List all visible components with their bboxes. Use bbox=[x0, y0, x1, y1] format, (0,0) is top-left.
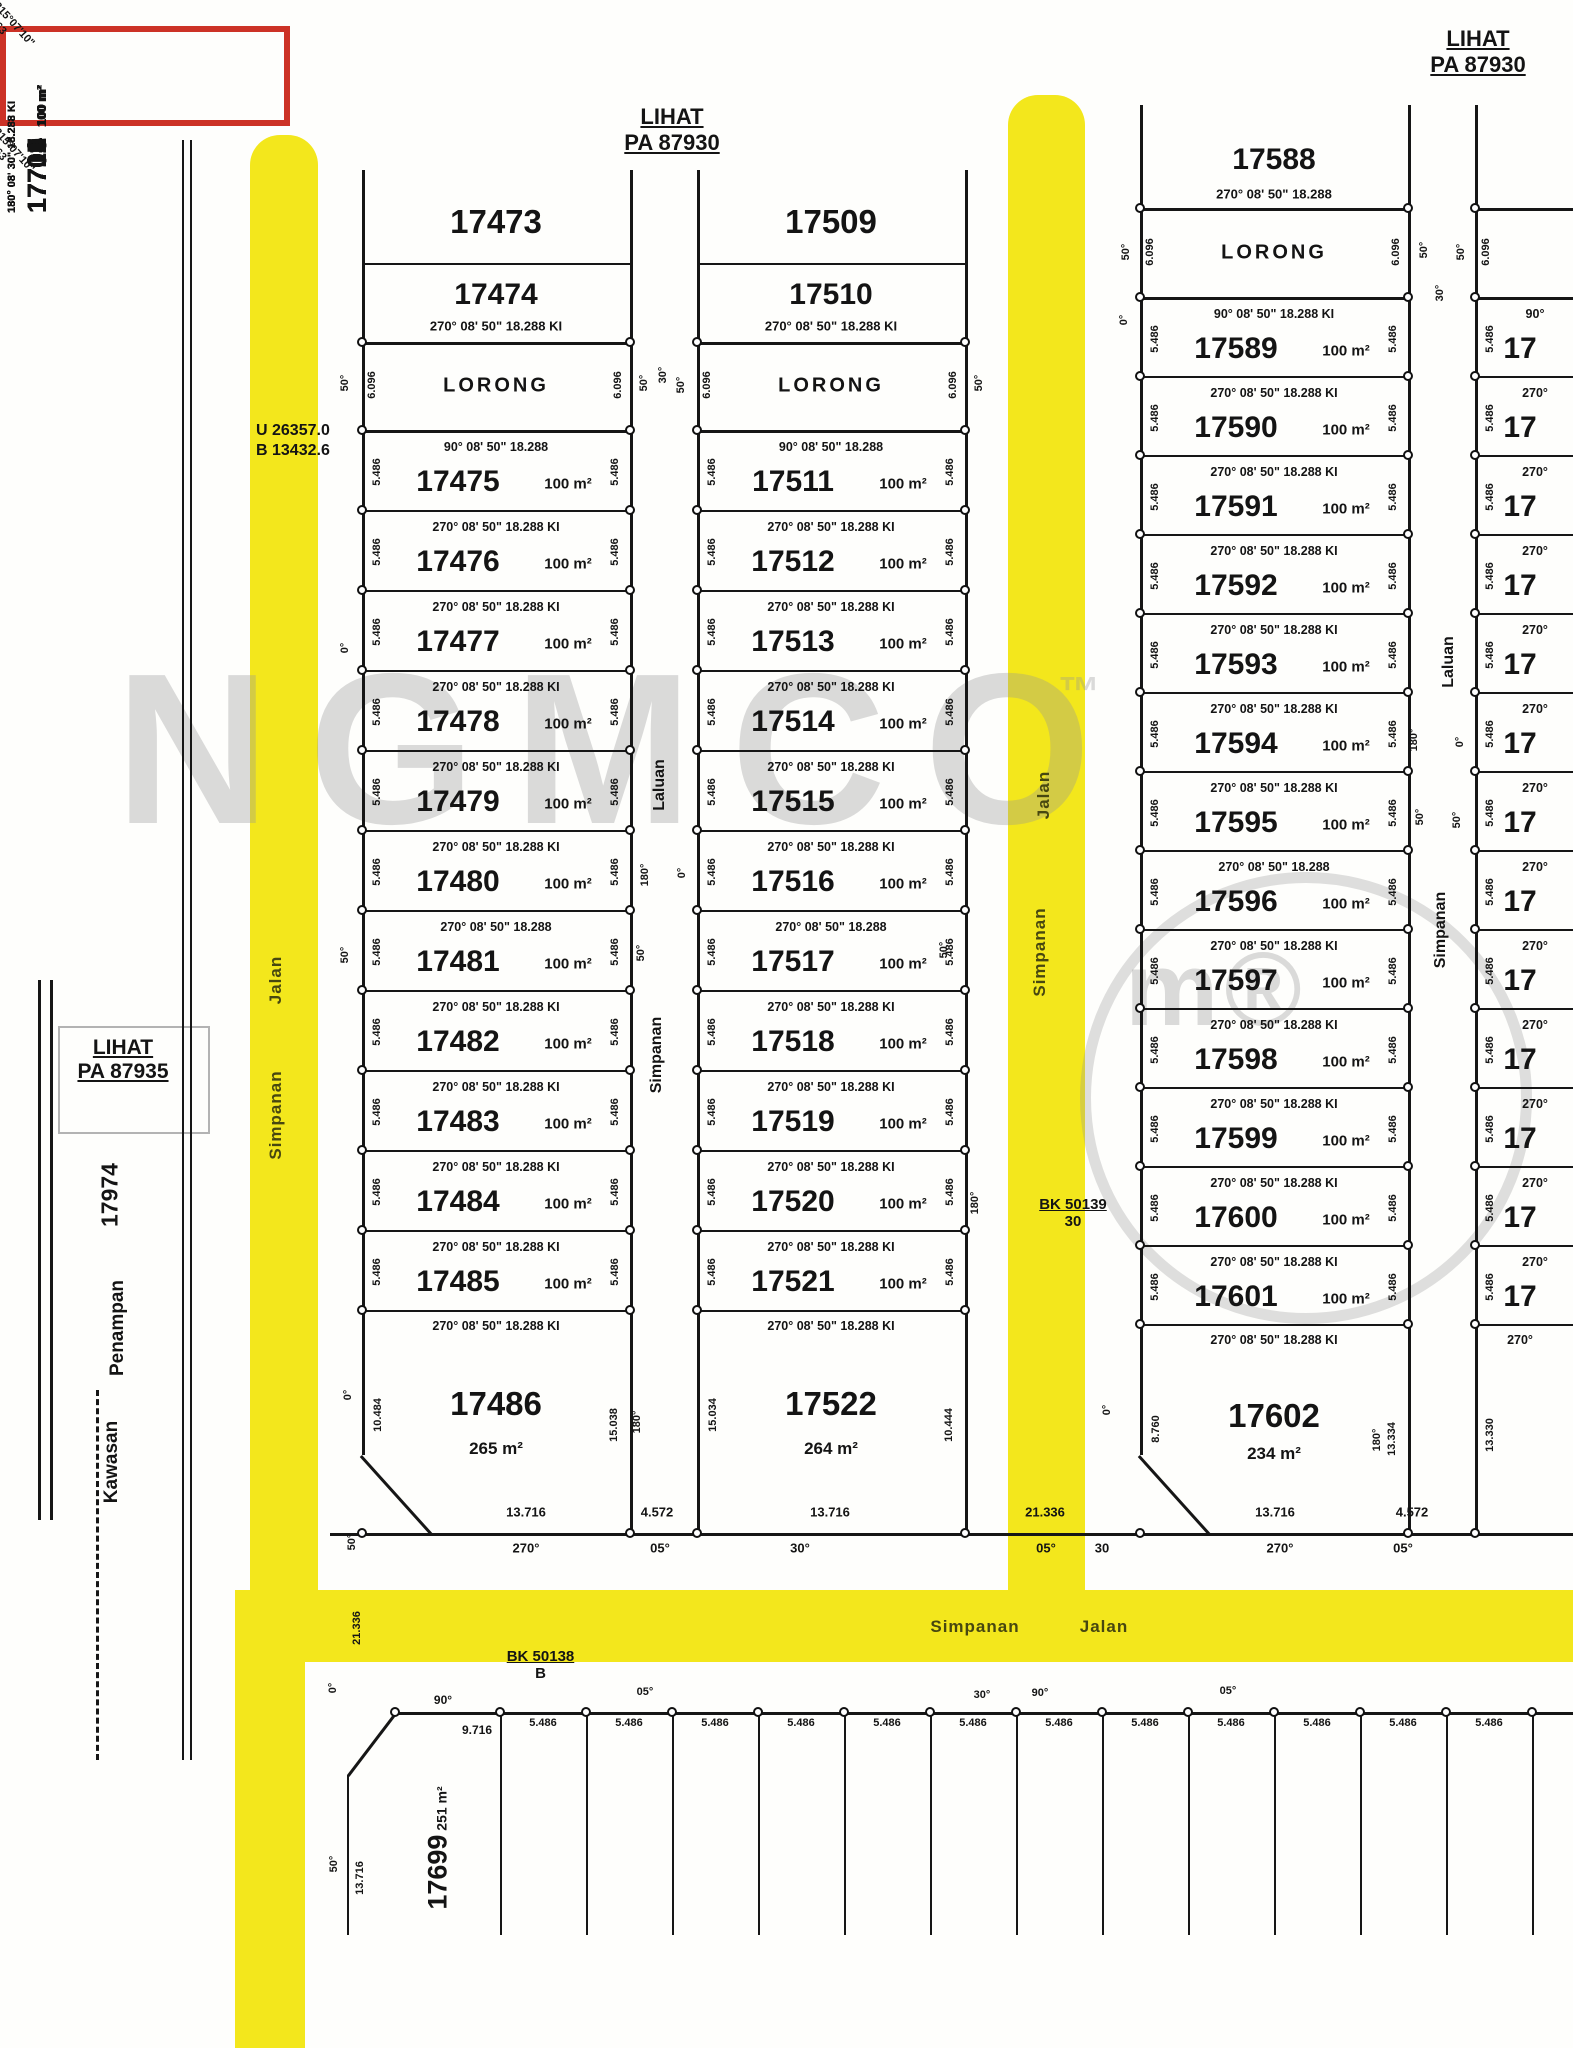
stray-label: 0° bbox=[676, 868, 688, 879]
side-dimension: 5.486 bbox=[609, 1098, 621, 1126]
road-middle-name-jalan: Jalan bbox=[1034, 771, 1054, 819]
lot-area: 100 m² bbox=[879, 1276, 927, 1293]
boundary-line bbox=[1140, 376, 1408, 378]
stray-label: 0° bbox=[342, 1390, 354, 1401]
edge-dimension: 21.336 bbox=[1025, 1505, 1065, 1520]
lorong-label: LORONG bbox=[778, 375, 884, 398]
bearing-label: 270° bbox=[1522, 544, 1548, 558]
boundary-line bbox=[1475, 613, 1573, 615]
walkway1-name-laluan: Laluan bbox=[651, 759, 669, 811]
watermark-text: NGMCO bbox=[115, 625, 1129, 873]
bearing-label: 270° 08' 50" 18.288 KI bbox=[1210, 781, 1337, 795]
side-dimension: 5.486 bbox=[1387, 799, 1399, 827]
boundary-line bbox=[347, 1775, 349, 1935]
bk-ref-50138: BK 50138 B bbox=[488, 1648, 593, 1682]
side-dimension: 5.486 bbox=[1387, 1115, 1399, 1143]
boundary-line bbox=[697, 1070, 965, 1072]
side-dimension: 5.486 bbox=[1387, 957, 1399, 985]
survey-mark-icon bbox=[692, 505, 702, 515]
lot-number: 17 bbox=[1503, 1201, 1536, 1235]
ref-note-left-line1: LIHAT bbox=[52, 1036, 194, 1060]
bottom-lot-17702: 180° 08' 30" 18.288 KI17702100 m² bbox=[0, 598, 86, 821]
survey-mark-icon bbox=[625, 985, 635, 995]
boundary-line bbox=[395, 1712, 1573, 1715]
lot-number: 17 bbox=[1503, 569, 1536, 603]
survey-mark-icon bbox=[1135, 845, 1145, 855]
lot-area: 100 m² bbox=[879, 876, 927, 893]
lot-number: 17594 bbox=[1194, 727, 1277, 761]
survey-mark-icon bbox=[1135, 924, 1145, 934]
edge-bearing: 05° bbox=[650, 1541, 670, 1556]
bearing-label: 270° 08' 50" 18.288 KI bbox=[767, 1240, 894, 1254]
road-middle-vertical bbox=[1008, 95, 1085, 1662]
boundary-line bbox=[362, 510, 630, 512]
lot-number: 17475 bbox=[416, 465, 499, 499]
survey-mark-icon bbox=[1470, 203, 1480, 213]
lot-area: 100 m² bbox=[879, 476, 927, 493]
survey-mark-icon bbox=[1135, 1528, 1145, 1538]
side-dimension: 13.330 bbox=[1484, 1418, 1496, 1452]
boundary-line bbox=[1140, 692, 1408, 694]
survey-mark-icon bbox=[692, 825, 702, 835]
bearing-label: 90° bbox=[1526, 307, 1545, 321]
edge-dimension: 13.716 bbox=[1255, 1505, 1295, 1520]
lot-area: 100 m² bbox=[879, 1116, 927, 1133]
bearing-label: 270° 08' 50" 18.288 KI bbox=[1210, 623, 1337, 637]
stray-label: 50° bbox=[938, 942, 950, 959]
stray-label: 0° bbox=[1101, 1405, 1113, 1416]
survey-mark-icon bbox=[692, 665, 702, 675]
side-dimension: 5.486 bbox=[706, 458, 718, 486]
lot-area: 100 m² bbox=[544, 1116, 592, 1133]
boundary-line-dashed bbox=[96, 1390, 99, 1760]
boundary-line bbox=[362, 590, 630, 592]
boundary-line bbox=[1274, 1712, 1276, 1935]
lot-number: 17484 bbox=[416, 1185, 499, 1219]
boundary-line bbox=[38, 980, 41, 1520]
side-dimension: 5.486 bbox=[1484, 957, 1496, 985]
survey-mark-icon bbox=[1470, 1319, 1480, 1329]
survey-mark-icon bbox=[625, 1305, 635, 1315]
survey-mark-icon bbox=[1135, 608, 1145, 618]
adjacent-area-name-penampan: Penampan bbox=[107, 1280, 129, 1376]
survey-mark-icon bbox=[1470, 608, 1480, 618]
side-dimension: 5.486 bbox=[609, 778, 621, 806]
edge-dimension: 13.716 bbox=[506, 1505, 546, 1520]
lot-area: 100 m² bbox=[1322, 738, 1370, 755]
bk-ref-50138-sub: B bbox=[488, 1665, 593, 1682]
survey-mark-icon bbox=[1135, 687, 1145, 697]
boundary-line bbox=[1475, 850, 1573, 852]
survey-mark-icon bbox=[960, 745, 970, 755]
bearing-label: 270° bbox=[1522, 623, 1548, 637]
side-dimension: 5.486 bbox=[706, 1178, 718, 1206]
side-dimension: 5.486 bbox=[371, 538, 383, 566]
survey-mark-icon bbox=[1470, 687, 1480, 697]
side-dimension: 5.486 bbox=[1387, 878, 1399, 906]
bearing-label: 90° bbox=[434, 1693, 452, 1707]
lot-number-second: 17474 bbox=[454, 278, 537, 312]
survey-mark-icon bbox=[692, 1065, 702, 1075]
boundary-line bbox=[362, 170, 365, 342]
survey-mark-icon bbox=[1470, 450, 1480, 460]
survey-plan-canvas: NGMCO ™ m® LIHAT PA 87930 LIHAT PA 87930… bbox=[0, 0, 1573, 2048]
survey-mark-icon bbox=[1011, 1707, 1021, 1717]
lot-area: 100 m² bbox=[879, 1196, 927, 1213]
side-dimension: 5.486 bbox=[944, 778, 956, 806]
lot-area: 100 m² bbox=[879, 796, 927, 813]
stray-label: 180° bbox=[969, 1192, 981, 1215]
lot-number: 17517 bbox=[751, 945, 834, 979]
lot-area: 100 m² bbox=[544, 796, 592, 813]
bearing-label: 270° 08' 50" 18.288 KI bbox=[767, 520, 894, 534]
boundary-line bbox=[930, 1712, 932, 1935]
lot-number: 17518 bbox=[751, 1025, 834, 1059]
lot-area: 100 m² bbox=[1322, 1212, 1370, 1229]
boundary-line bbox=[1475, 771, 1573, 773]
side-dimension: 5.486 bbox=[706, 858, 718, 886]
survey-mark-icon bbox=[357, 1528, 367, 1538]
lot-area: 100 m² bbox=[1322, 422, 1370, 439]
side-dimension: 5.486 bbox=[1484, 641, 1496, 669]
bearing-label: 270° bbox=[1522, 1097, 1548, 1111]
bearing-label: 90° 08' 50" 18.288 bbox=[444, 440, 548, 454]
lot-number: 17590 bbox=[1194, 411, 1277, 445]
lot-area: 100 m² bbox=[1322, 975, 1370, 992]
stray-label: 50° bbox=[339, 375, 351, 392]
side-dimension: 10.484 bbox=[372, 1398, 384, 1432]
bearing-label: 270° 08' 50" 18.288 KI bbox=[767, 760, 894, 774]
side-dimension: 5.486 bbox=[1387, 1273, 1399, 1301]
survey-mark-icon bbox=[1135, 1240, 1145, 1250]
stray-label: 50° bbox=[1120, 244, 1132, 261]
survey-mark-icon bbox=[960, 505, 970, 515]
edge-bearing: 270° bbox=[513, 1541, 540, 1556]
boundary-line bbox=[362, 1310, 630, 1312]
stray-label: 6.096 bbox=[612, 371, 624, 399]
stray-label: 50° bbox=[1418, 242, 1430, 259]
stray-label: 50° bbox=[1455, 244, 1467, 261]
lot-number: 17589 bbox=[1194, 332, 1277, 366]
boundary-line bbox=[1016, 1712, 1018, 1935]
survey-mark-icon bbox=[960, 425, 970, 435]
lot-area: 100 m² bbox=[544, 956, 592, 973]
lot-number: 17514 bbox=[751, 705, 834, 739]
bottom-lot-17708: 180° 08' 30" 18.288 KI17708100 m² bbox=[0, 1936, 86, 2048]
lot-number: 17479 bbox=[416, 785, 499, 819]
adjacent-area-name-kawasan: Kawasan bbox=[101, 1421, 123, 1503]
bk-ref-50139: BK 50139 30 bbox=[1018, 1196, 1128, 1230]
survey-mark-icon bbox=[625, 505, 635, 515]
bearing-label: 270° 08' 50" 18.288 KI bbox=[432, 1160, 559, 1174]
lot-number: 17591 bbox=[1194, 490, 1277, 524]
boundary-line bbox=[697, 1230, 965, 1232]
bearing-label: 270° 08' 50" 18.288 KI bbox=[1210, 386, 1337, 400]
survey-mark-icon bbox=[1470, 1082, 1480, 1092]
survey-mark-icon bbox=[357, 1225, 367, 1235]
survey-mark-icon bbox=[692, 905, 702, 915]
boundary-line bbox=[697, 830, 965, 832]
lot-number: 17521 bbox=[751, 1265, 834, 1299]
bearing-label: 270° 08' 50" 18.288 KI bbox=[1210, 1018, 1337, 1032]
survey-mark-icon bbox=[692, 745, 702, 755]
boundary-line bbox=[697, 263, 965, 265]
survey-mark-icon bbox=[960, 1528, 970, 1538]
survey-mark-icon bbox=[960, 665, 970, 675]
survey-mark-icon bbox=[357, 585, 367, 595]
boundary-line bbox=[362, 263, 630, 265]
side-dimension: 5.486 bbox=[609, 858, 621, 886]
side-dimension: 5.486 bbox=[1149, 641, 1161, 669]
bearing-label: 270° 08' 50" 18.288 KI bbox=[1210, 1255, 1337, 1269]
side-dimension: 5.486 bbox=[1149, 1036, 1161, 1064]
boundary-line bbox=[362, 342, 630, 345]
lot-area: 100 m² bbox=[1322, 817, 1370, 834]
lot-number: 17512 bbox=[751, 545, 834, 579]
side-dimension: 5.486 bbox=[371, 1178, 383, 1206]
boundary-line bbox=[1140, 534, 1408, 536]
side-dimension: 5.486 bbox=[1387, 325, 1399, 353]
lot-number: 17478 bbox=[416, 705, 499, 739]
bearing-label: 180° 08' 30" 18.288 KI bbox=[6, 36, 18, 213]
survey-mark-icon bbox=[625, 1145, 635, 1155]
bearing-label: 270° 08' 50" 18.288 KI bbox=[1210, 1333, 1337, 1347]
bearing-label: 270° bbox=[1522, 465, 1548, 479]
survey-mark-icon bbox=[625, 1065, 635, 1075]
survey-mark-icon bbox=[1470, 1003, 1480, 1013]
side-dimension: 5.486 bbox=[371, 458, 383, 486]
lot-area-big: 264 m² bbox=[804, 1439, 858, 1459]
stray-label: 6.096 bbox=[701, 371, 713, 399]
walkway1-name-simpanan: Simpanan bbox=[648, 1017, 666, 1093]
survey-mark-icon bbox=[1403, 1528, 1413, 1538]
survey-mark-icon bbox=[1441, 1707, 1451, 1717]
lot-number-big: 17522 bbox=[785, 1385, 877, 1423]
side-dimension: 5.486 bbox=[706, 538, 718, 566]
width-dimension: 5.486 bbox=[1389, 1717, 1417, 1729]
boundary-line bbox=[697, 590, 965, 592]
boundary-line bbox=[697, 342, 700, 1533]
survey-mark-icon bbox=[960, 337, 970, 347]
survey-mark-icon bbox=[357, 745, 367, 755]
side-dimension: 5.486 bbox=[1484, 325, 1496, 353]
survey-mark-icon bbox=[357, 505, 367, 515]
stray-label: 6.096 bbox=[366, 371, 378, 399]
survey-mark-icon bbox=[667, 1707, 677, 1717]
boundary-line bbox=[1475, 1166, 1573, 1168]
survey-mark-icon bbox=[625, 905, 635, 915]
survey-mark-icon bbox=[960, 825, 970, 835]
survey-mark-icon bbox=[1470, 529, 1480, 539]
stray-label: 50° bbox=[635, 945, 647, 962]
width-dimension: 5.486 bbox=[701, 1717, 729, 1729]
side-dimension: 5.486 bbox=[1387, 641, 1399, 669]
bearing-label: 270° 08' 50" 18.288 KI bbox=[432, 600, 559, 614]
bearing-label: 270° bbox=[1522, 860, 1548, 874]
road-left-name-jalan: Jalan bbox=[266, 956, 286, 1004]
bearing-label: 270° 08' 50" 18.288 KI bbox=[767, 1160, 894, 1174]
stray-label: 180° bbox=[631, 1411, 643, 1434]
lot-number: 17597 bbox=[1194, 964, 1277, 998]
boundary-line bbox=[697, 170, 700, 342]
lot-number: 17483 bbox=[416, 1105, 499, 1139]
lot-number: 17711 bbox=[22, 139, 53, 213]
width-dimension: 9.716 bbox=[462, 1723, 492, 1737]
boundary-line bbox=[1475, 105, 1478, 208]
bearing-label: 270° 08' 50" 18.288 KI bbox=[767, 600, 894, 614]
coordinate-east: B 13432.6 bbox=[256, 441, 330, 461]
lot-number: 17476 bbox=[416, 545, 499, 579]
lot-number: 17601 bbox=[1194, 1280, 1277, 1314]
survey-mark-icon bbox=[1135, 203, 1145, 213]
lot-area: 100 m² bbox=[1322, 501, 1370, 518]
bearing-label: 50° bbox=[328, 1856, 340, 1873]
bearing-label: 270° bbox=[1522, 1176, 1548, 1190]
boundary-line bbox=[1408, 208, 1411, 1533]
bearing-label: 270° 08' 50" 18.288 KI bbox=[1210, 465, 1337, 479]
boundary-line bbox=[362, 1230, 630, 1232]
ref-note-left-line2: PA 87935 bbox=[52, 1060, 194, 1084]
side-dimension: 5.486 bbox=[1484, 483, 1496, 511]
boundary-line bbox=[1140, 1166, 1408, 1168]
lot-number: 17 bbox=[1503, 411, 1536, 445]
lot-area-big: 234 m² bbox=[1247, 1444, 1301, 1464]
stray-label: 50° bbox=[1451, 812, 1463, 829]
boundary-line bbox=[697, 670, 965, 672]
road-left-vertical-lower bbox=[235, 1662, 305, 2048]
side-dimension: 5.486 bbox=[1149, 483, 1161, 511]
side-dimension: 5.486 bbox=[944, 458, 956, 486]
lot-area: 100 m² bbox=[544, 636, 592, 653]
bk-ref-50139-sub: 30 bbox=[1018, 1213, 1128, 1230]
survey-mark-icon bbox=[1135, 529, 1145, 539]
bottom-lot-17703: 180° 08' 30" 18.288 KI17703100 m² bbox=[0, 821, 86, 1044]
boundary-line bbox=[1140, 208, 1408, 211]
lot-area: 100 m² bbox=[544, 1036, 592, 1053]
boundary-line bbox=[1360, 1712, 1362, 1935]
bearing-label: 270° 08' 50" 18.288 bbox=[1216, 187, 1332, 202]
lot-number: 17 bbox=[1503, 1122, 1536, 1156]
diagonal-boundary-line bbox=[360, 1455, 433, 1536]
bearing-label: 270° 08' 50" 18.288 KI bbox=[767, 680, 894, 694]
boundary-line bbox=[1140, 1324, 1408, 1326]
survey-mark-icon bbox=[495, 1707, 505, 1717]
coordinate-north: U 26357.0 bbox=[256, 421, 330, 441]
survey-mark-icon bbox=[581, 1707, 591, 1717]
survey-mark-icon bbox=[692, 425, 702, 435]
survey-mark-icon bbox=[1355, 1707, 1365, 1717]
side-dimension: 5.486 bbox=[944, 538, 956, 566]
side-dimension: 5.486 bbox=[1149, 1273, 1161, 1301]
lot-area: 100 m² bbox=[544, 716, 592, 733]
survey-mark-icon bbox=[625, 585, 635, 595]
survey-mark-icon bbox=[625, 665, 635, 675]
width-dimension: 5.486 bbox=[1131, 1717, 1159, 1729]
side-dimension: 5.486 bbox=[1149, 720, 1161, 748]
stray-label: 05° bbox=[637, 1686, 654, 1698]
boundary-line bbox=[1475, 534, 1573, 536]
boundary-line bbox=[1475, 929, 1573, 931]
boundary-line bbox=[1446, 1712, 1448, 1935]
bearing-label: 90° 08' 50" 18.288 KI bbox=[1214, 307, 1334, 321]
width-dimension: 5.486 bbox=[1045, 1717, 1073, 1729]
lot-number: 17 bbox=[1503, 885, 1536, 919]
side-dimension: 5.486 bbox=[1484, 1273, 1496, 1301]
survey-mark-icon bbox=[1403, 450, 1413, 460]
bottom-lot-17699: 17699 251 m² bbox=[423, 1786, 454, 1909]
lot-area: 100 m² bbox=[544, 1196, 592, 1213]
side-dimension: 5.486 bbox=[371, 1098, 383, 1126]
road-middle-name-simpanan: Simpanan bbox=[1030, 907, 1050, 996]
boundary-line bbox=[1475, 455, 1573, 457]
boundary-line bbox=[630, 342, 633, 1533]
boundary-line bbox=[672, 1712, 674, 1935]
boundary-line bbox=[1475, 1324, 1573, 1326]
side-dimension: 5.486 bbox=[609, 538, 621, 566]
stray-label: 30° bbox=[974, 1689, 991, 1701]
lot-number: 17 bbox=[1503, 1280, 1536, 1314]
survey-mark-icon bbox=[625, 1528, 635, 1538]
edge-dimension: 13.716 bbox=[810, 1505, 850, 1520]
survey-mark-icon bbox=[692, 585, 702, 595]
lorong-label: LORONG bbox=[443, 375, 549, 398]
boundary-line bbox=[697, 430, 965, 433]
lot-area: 100 m² bbox=[1322, 659, 1370, 676]
stray-label: 30° bbox=[657, 367, 669, 384]
boundary-line bbox=[697, 342, 965, 345]
survey-mark-icon bbox=[625, 337, 635, 347]
side-dimension: 5.486 bbox=[1149, 799, 1161, 827]
stray-label: 180° bbox=[639, 864, 651, 887]
survey-mark-icon bbox=[692, 1145, 702, 1155]
stray-label: 0° bbox=[339, 643, 351, 654]
side-dimension: 5.486 bbox=[944, 1018, 956, 1046]
diagonal-boundary-line bbox=[1138, 1455, 1211, 1536]
stray-label: 50° bbox=[675, 377, 687, 394]
survey-mark-icon bbox=[357, 1305, 367, 1315]
side-dimension: 5.486 bbox=[609, 618, 621, 646]
boundary-line bbox=[697, 910, 965, 912]
bearing-label: 270° 08' 50" 18.288 KI bbox=[1210, 1097, 1337, 1111]
coordinate-label: U 26357.0 B 13432.6 bbox=[256, 421, 330, 461]
survey-mark-icon bbox=[1403, 924, 1413, 934]
boundary-line bbox=[330, 1533, 1573, 1536]
bearing-label: 90° 08' 50" 18.288 bbox=[779, 440, 883, 454]
side-dimension: 5.486 bbox=[706, 618, 718, 646]
bearing-label: 270° 08' 50" 18.288 KI bbox=[432, 1080, 559, 1094]
lot-area: 100 m² bbox=[1322, 1291, 1370, 1308]
boundary-line bbox=[362, 1070, 630, 1072]
ref-note-top-right-line2: PA 87930 bbox=[1398, 52, 1558, 78]
lot-area: 100 m² bbox=[544, 1276, 592, 1293]
edge-bearing: 05° bbox=[1393, 1541, 1413, 1556]
bearing-label: 270° 08' 50" 18.288 bbox=[775, 920, 886, 934]
survey-mark-icon bbox=[1183, 1707, 1193, 1717]
bearing-label: 270° bbox=[1522, 702, 1548, 716]
diagonal-boundary-line bbox=[347, 1712, 397, 1777]
side-dimension: 5.486 bbox=[706, 1098, 718, 1126]
lot-area: 251 m² bbox=[434, 1786, 450, 1834]
stray-label: 0° bbox=[1118, 315, 1130, 326]
width-dimension: 5.486 bbox=[873, 1717, 901, 1729]
survey-mark-icon bbox=[1403, 529, 1413, 539]
bearing-label: 270° bbox=[1522, 781, 1548, 795]
side-dimension: 5.486 bbox=[706, 1258, 718, 1286]
lot-number: 17596 bbox=[1194, 885, 1277, 919]
stray-label: 50° bbox=[346, 1534, 358, 1551]
lot-area: 100 m² bbox=[879, 956, 927, 973]
survey-mark-icon bbox=[1135, 371, 1145, 381]
